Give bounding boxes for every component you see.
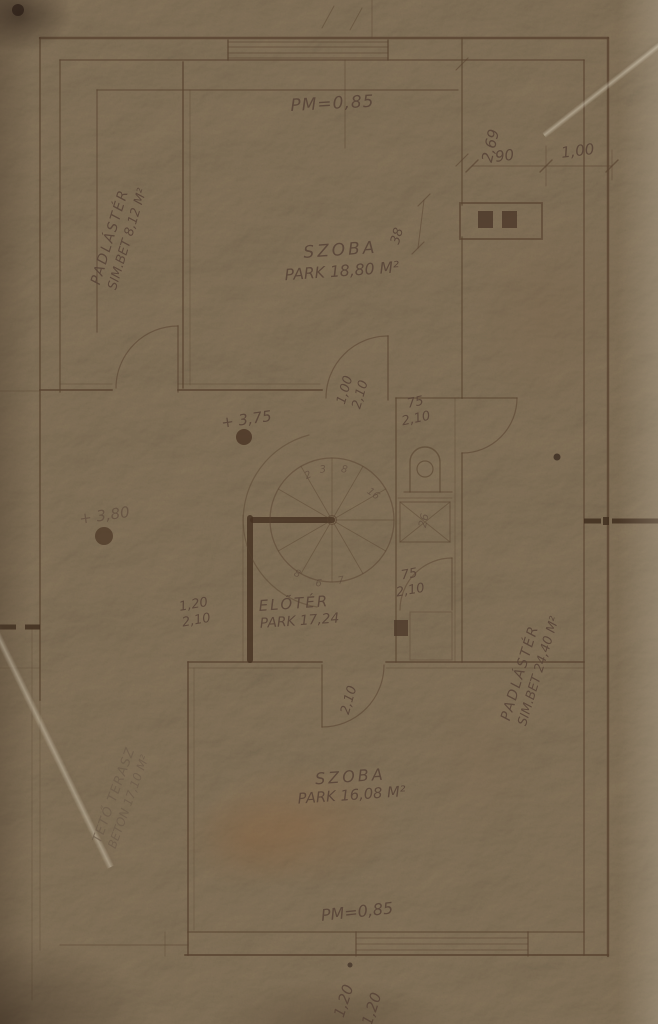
floor-plan-scan: PM=0,85 2,69 90 1,00 38 SZOBA PARK 18,80… bbox=[0, 0, 658, 1024]
door-dims-wc-lower: 75 2,10 bbox=[392, 565, 426, 602]
dimension-sink: 26 bbox=[416, 512, 432, 529]
level-dot-lower bbox=[95, 527, 113, 545]
room-label-eloter: ELŐTÉR PARK 17,24 bbox=[258, 591, 340, 632]
level-dot-upper bbox=[236, 429, 252, 445]
door-dims-terrace: 1,20 2,10 bbox=[178, 595, 212, 632]
stair-step-number: 6 bbox=[315, 578, 322, 591]
level-note-top: PM=0,85 bbox=[290, 92, 375, 118]
dimension-90: 90 bbox=[494, 146, 515, 167]
